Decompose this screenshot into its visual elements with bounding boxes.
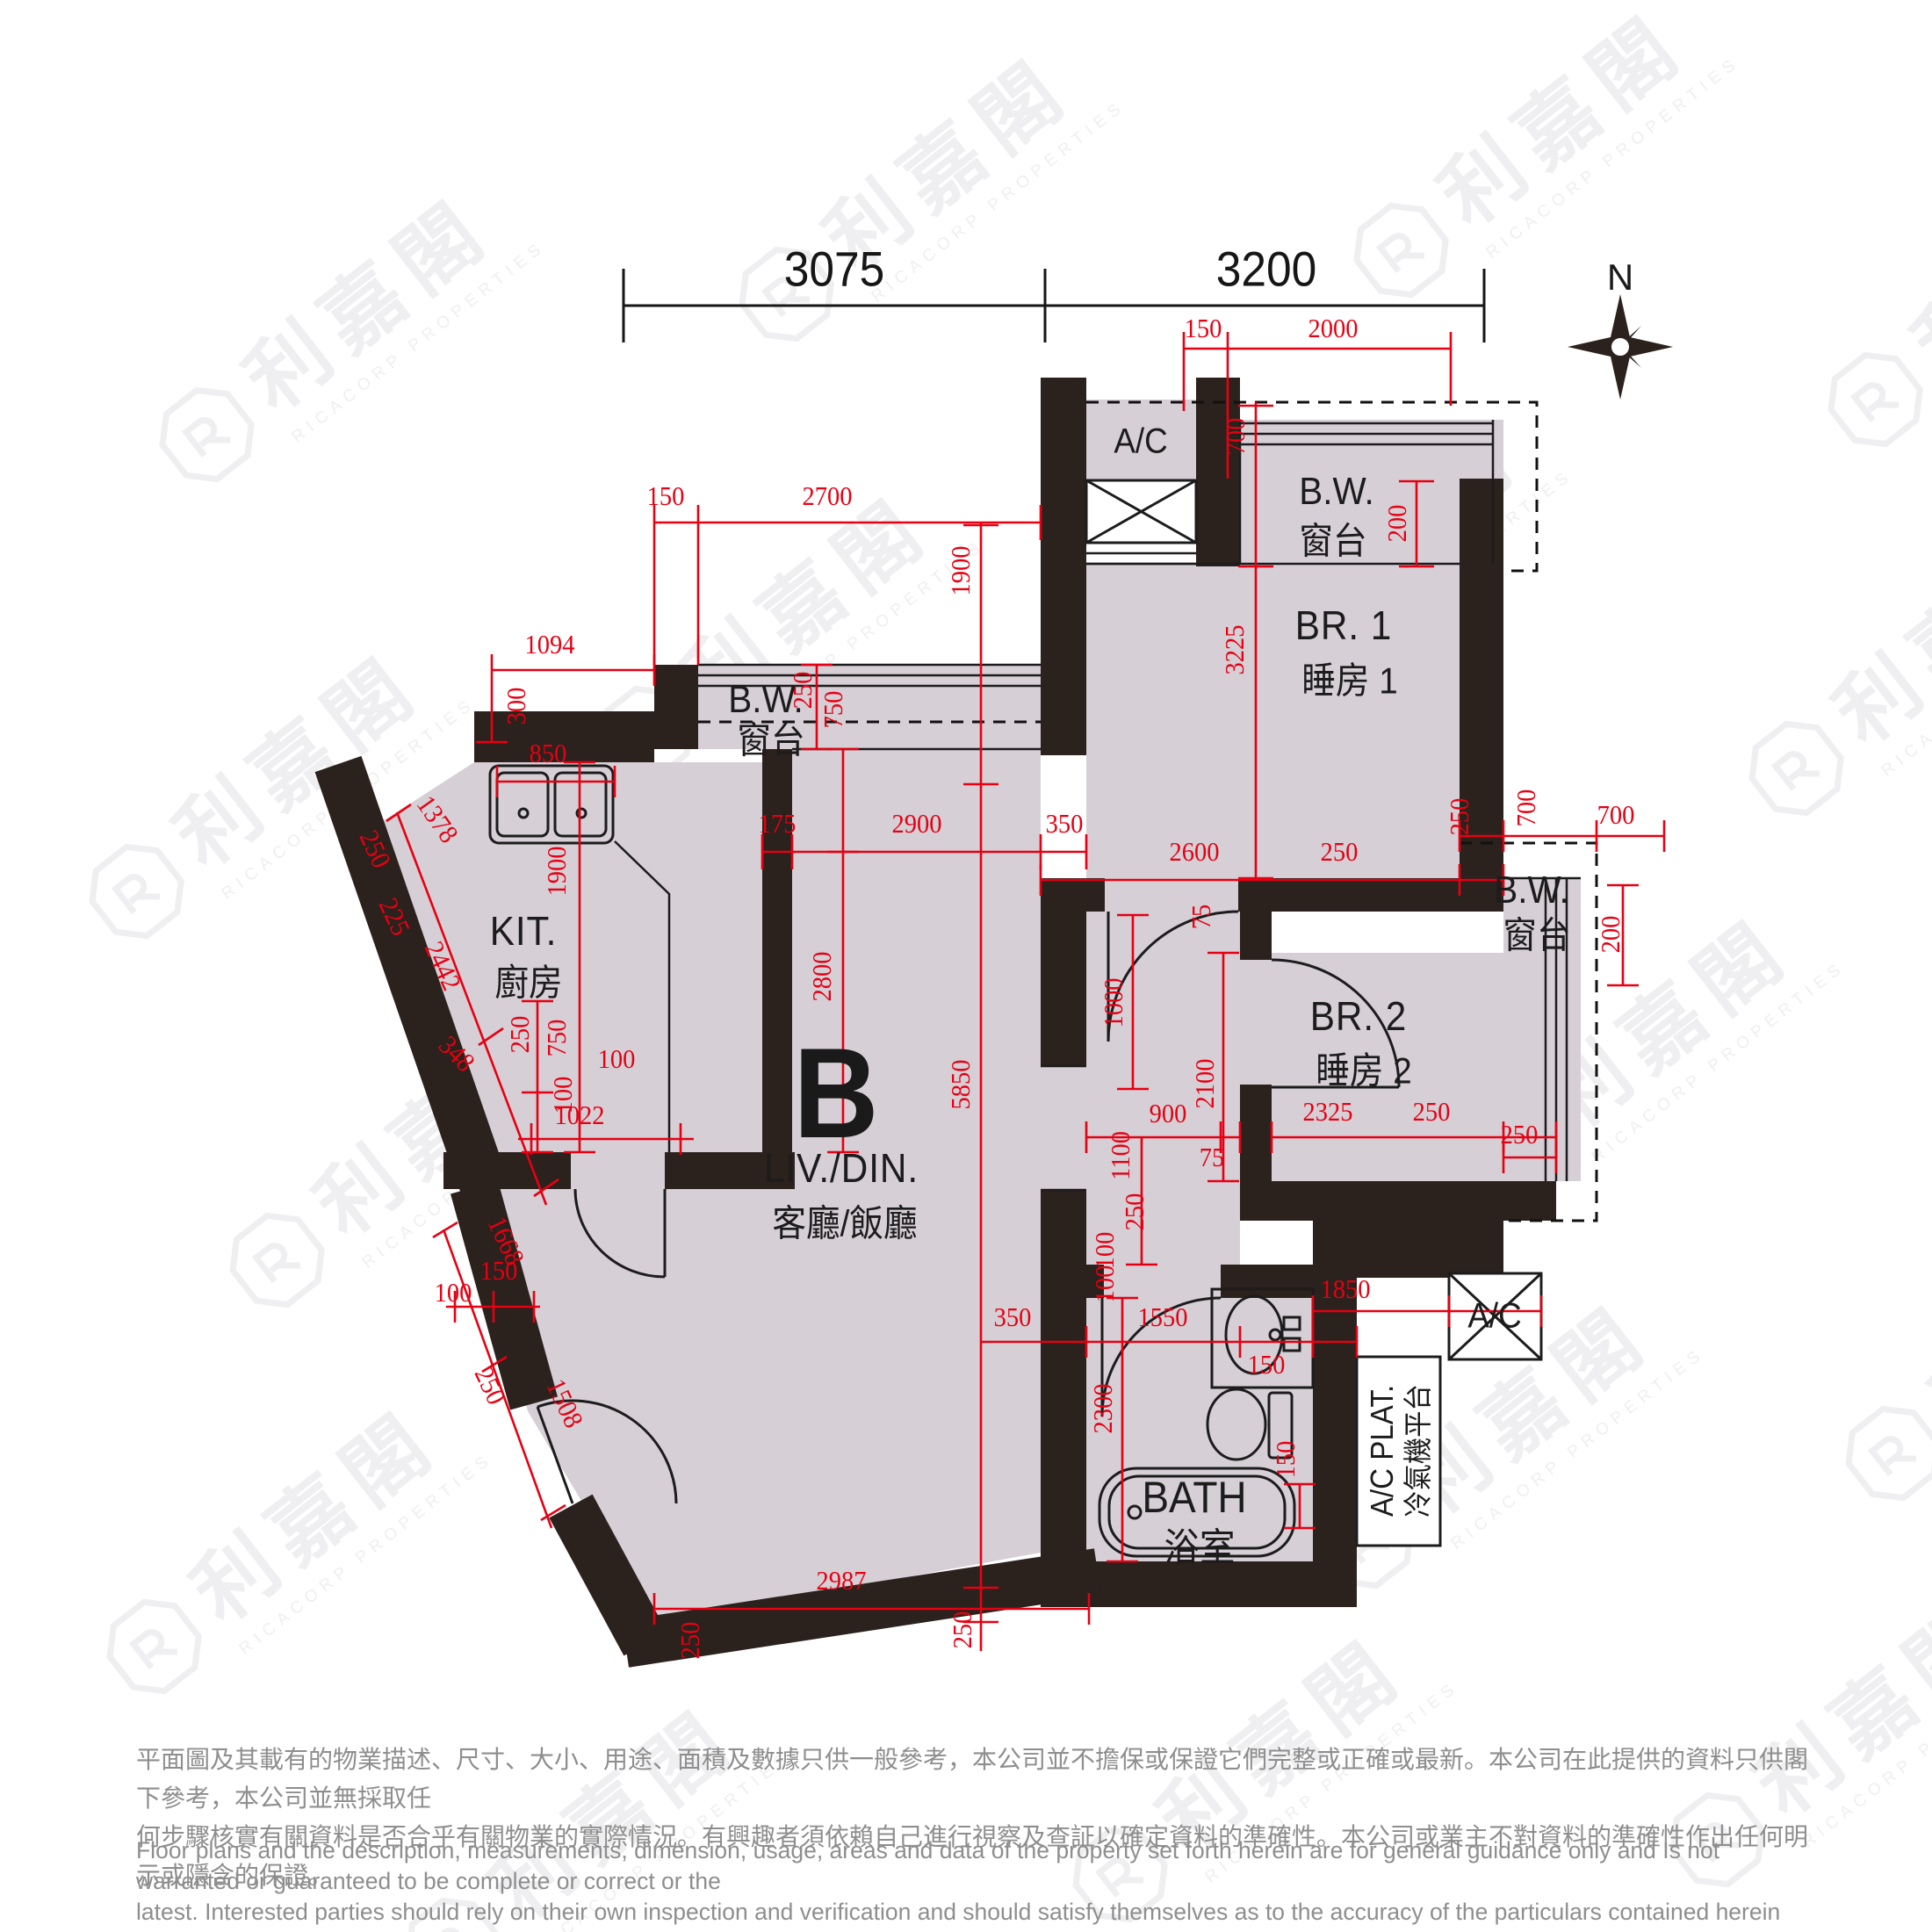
dimension-label: 250 xyxy=(674,1622,706,1660)
room-label-zh-bay-window-br2: 窗台 xyxy=(1503,906,1570,960)
dimension-label: 1900 xyxy=(541,846,573,896)
dimension-label: 75 xyxy=(1200,1142,1225,1173)
dimension-label: 1094 xyxy=(524,629,574,660)
dimension-label: 250 xyxy=(1501,1119,1539,1150)
dimension-label: 750 xyxy=(541,1020,573,1057)
dimension-label: 2600 xyxy=(1169,836,1219,868)
dimension-label: 350 xyxy=(994,1301,1032,1333)
room-label-zh-bay-window-br1: 窗台 xyxy=(1299,512,1366,566)
room-label-zh-kitchen: 廚房 xyxy=(494,954,562,1007)
dimension-label: 350 xyxy=(1046,808,1084,840)
dimension-label: 200 xyxy=(1381,505,1413,543)
dimension-label: 200 xyxy=(1595,916,1626,954)
room-label-zh-ac-platform: 冷氣機平台 xyxy=(1395,1384,1437,1517)
dimension-label: 100 xyxy=(1089,1232,1121,1270)
dimension-label: 150 xyxy=(1185,313,1222,344)
dimension-label: 250 xyxy=(504,1016,536,1054)
room-label-zh-bedroom-2: 睡房 2 xyxy=(1316,1042,1412,1095)
dimension-label: 900 xyxy=(1150,1098,1187,1129)
dimension-label: 150 xyxy=(480,1255,518,1287)
room-label-zh-bedroom-1: 睡房 1 xyxy=(1301,652,1398,705)
dimension-label: 1000 xyxy=(1098,977,1129,1027)
room-label-bedroom-1: BR. 1 xyxy=(1295,602,1392,649)
north-compass: N xyxy=(1568,256,1673,400)
dimension-label: 250 xyxy=(1444,798,1475,836)
dimension-label: 850 xyxy=(530,738,567,769)
room-label-zh-bath: 浴室 xyxy=(1164,1516,1236,1572)
dimension-label: 250 xyxy=(947,1611,978,1649)
dimension-label: 2100 xyxy=(1189,1058,1221,1108)
disclaimer-en-line2: latest. Interested parties should rely o… xyxy=(136,1897,1813,1932)
room-label-bay-window-br1: B.W. xyxy=(1299,470,1373,514)
dimension-label: 100 xyxy=(598,1043,636,1075)
disclaimer-en-line1: Floor plans and the description, measure… xyxy=(136,1835,1813,1897)
floorplan-page: 利嘉閣RICACORP PROPERTIES利嘉閣RICACORP PROPER… xyxy=(0,0,1932,1932)
disclaimer-english: Floor plans and the description, measure… xyxy=(136,1835,1813,1932)
room-label-ac-unit-top: A/C xyxy=(1114,422,1167,462)
dimension-label: 2700 xyxy=(802,480,852,512)
dimension-label: 100 xyxy=(1089,1265,1121,1303)
dimension-label: 300 xyxy=(501,688,532,725)
dimension-label: 250 xyxy=(1321,836,1359,868)
dimension-label: 3075 xyxy=(784,241,885,298)
dimension-label: 1550 xyxy=(1137,1301,1187,1333)
dimension-label: 3200 xyxy=(1216,241,1317,298)
dimension-label: 5850 xyxy=(945,1059,977,1109)
dimension-label: 700 xyxy=(1597,799,1635,831)
room-label-kitchen: KIT. xyxy=(490,907,558,955)
dimension-label: 2000 xyxy=(1308,313,1358,344)
dimension-label: 3225 xyxy=(1219,624,1251,674)
dimension-label: 2900 xyxy=(891,808,941,840)
dimension-label: 2987 xyxy=(816,1565,866,1597)
dimension-label: 150 xyxy=(647,480,685,512)
disclaimer-zh-line1: 平面圖及其載有的物業描述、尺寸、大小、用途、面積及數據只供一般參考，本公司並不擔… xyxy=(136,1741,1813,1818)
room-label-ac-unit-right: A/C xyxy=(1467,1297,1521,1337)
dimension-label: 250 xyxy=(1413,1096,1451,1128)
dimension-label: 2300 xyxy=(1087,1383,1119,1433)
dimension-label: 75 xyxy=(1186,905,1217,930)
dimension-label: 2325 xyxy=(1302,1096,1352,1128)
dimension-label: 1100 xyxy=(1105,1131,1136,1180)
dimension-label: 1022 xyxy=(554,1099,604,1131)
unit-label: B xyxy=(793,1020,878,1167)
room-label-bedroom-2: BR. 2 xyxy=(1310,992,1407,1040)
dimension-label: 150 xyxy=(1248,1349,1286,1381)
compass-north-label: N xyxy=(1607,256,1633,298)
dimension-label: 750 xyxy=(818,691,849,729)
dimension-label: 250 xyxy=(1119,1193,1150,1231)
dimension-label: 175 xyxy=(759,808,797,840)
dimension-label: 1850 xyxy=(1320,1273,1370,1305)
dimension-label: 700 xyxy=(1510,789,1542,827)
dimension-label: 100 xyxy=(435,1277,472,1308)
dimension-label: 150 xyxy=(1270,1441,1301,1479)
dimension-label: 700 xyxy=(1220,418,1251,456)
room-label-zh-living-dining: 客廳/飯廳 xyxy=(772,1194,917,1248)
dimension-label: 1900 xyxy=(945,545,977,595)
room-label-zh-bay-window-living: 窗台 xyxy=(737,711,804,765)
dimension-label: 2800 xyxy=(806,951,838,1001)
